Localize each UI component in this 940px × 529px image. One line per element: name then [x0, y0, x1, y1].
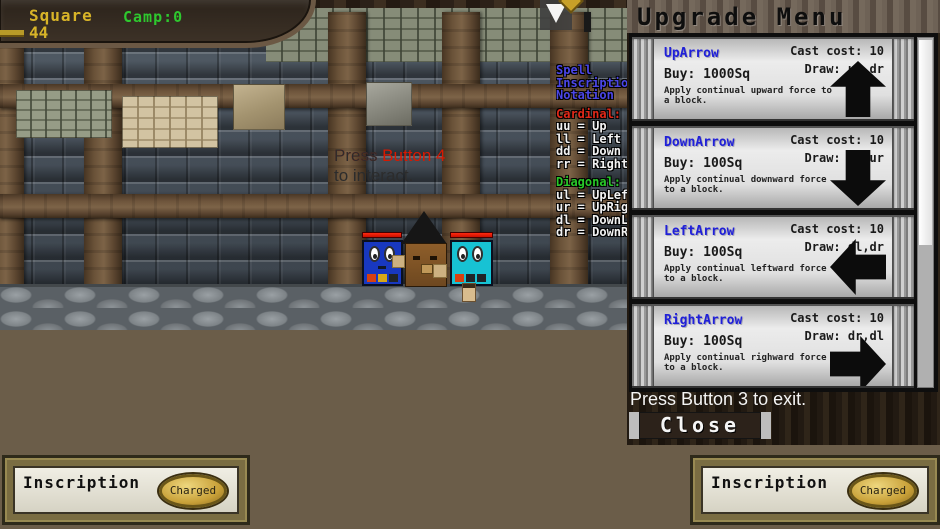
- close-button-label: Close: [660, 413, 740, 437]
- down-triangle-icon: [546, 4, 566, 23]
- notation-entry: uu = Up: [556, 120, 627, 133]
- square-value: 44: [29, 23, 48, 42]
- card-rail: [892, 39, 914, 121]
- mouth: [378, 266, 386, 269]
- upgrade-name: LeftArrow: [664, 224, 734, 239]
- brick-patch: [16, 90, 112, 138]
- inscription-panel-left: Inscription Charged: [2, 455, 250, 525]
- upgrade-description: Apply continual downward force to a bloc…: [664, 176, 832, 195]
- pupil: [373, 254, 377, 259]
- diagonal-header: Diagonal:: [556, 176, 627, 189]
- game-scene: Square 44 Camp:0 Spell Inscription Notat…: [0, 0, 628, 529]
- inscription-inner: Inscription Charged: [701, 466, 929, 514]
- game-screen: Square 44 Camp:0 Spell Inscription Notat…: [0, 0, 940, 529]
- wood-beam: [84, 12, 122, 290]
- status-icon: [367, 274, 376, 282]
- interact-suffix: to interact.: [334, 166, 446, 186]
- eye-icon: [413, 256, 420, 260]
- cast-cost: Cast cost: 10: [790, 222, 884, 236]
- tan-block: [392, 255, 405, 268]
- cast-cost: Cast cost: 10: [790, 311, 884, 325]
- spell-title-line: Notation: [556, 89, 627, 102]
- hair: [463, 284, 475, 288]
- eye-icon: [472, 246, 483, 262]
- notation-entry: rr = Right: [556, 158, 627, 171]
- location-banner: Square 44 Camp:0: [0, 0, 316, 48]
- upgrade-name: RightArrow: [664, 313, 742, 328]
- upgrade-name: DownArrow: [664, 135, 734, 150]
- upgrade-card-downarrow[interactable]: DownArrow Cast cost: 10 Draw: dr,ur Buy:…: [632, 126, 914, 210]
- stone-patch: [366, 82, 412, 126]
- brick-patch: [122, 96, 218, 148]
- inscription-label: Inscription: [711, 473, 828, 492]
- cast-cost: Cast cost: 10: [790, 133, 884, 147]
- upgrade-card-list: UpArrow Cast cost: 10 Draw: ur,dr Buy: 1…: [632, 37, 914, 388]
- tan-block: [433, 264, 447, 278]
- upgrade-card-rightarrow[interactable]: RightArrow Cast cost: 10 Draw: dr,dl Buy…: [632, 304, 914, 388]
- scrollbar-thumb[interactable]: [919, 40, 932, 245]
- upgrade-card-leftarrow[interactable]: LeftArrow Cast cost: 10 Draw: dl,dr Buy:…: [632, 215, 914, 299]
- health-bar-right: [450, 232, 493, 238]
- notation-entry: dr = DownRight: [556, 226, 627, 239]
- buy-price: Buy: 1000Sq: [664, 67, 750, 82]
- buy-price: Buy: 100Sq: [664, 245, 742, 260]
- pupil: [476, 254, 480, 259]
- interact-prefix: Press: [334, 146, 377, 166]
- wood-beam: [0, 12, 24, 290]
- upgrade-description: Apply continual leftward force to a bloc…: [664, 265, 832, 284]
- inscription-panel-right: Inscription Charged: [690, 455, 940, 525]
- banner-gold-trim: [0, 30, 24, 37]
- card-rail: [632, 128, 654, 210]
- eye-icon: [430, 256, 437, 260]
- status-icon: [455, 274, 464, 282]
- snout: [421, 264, 433, 274]
- inscription-label: Inscription: [23, 473, 140, 492]
- charged-button-label: Charged: [860, 484, 906, 497]
- eye-icon: [369, 246, 380, 262]
- exit-hint: Press Button 3 to exit.: [630, 389, 806, 410]
- card-rail: [632, 306, 654, 388]
- small-character: [462, 283, 476, 302]
- menu-scrollbar[interactable]: [917, 37, 934, 388]
- stone-patch: [233, 84, 285, 130]
- upgrade-menu-body: UpArrow Cast cost: 10 Draw: ur,dr Buy: 1…: [629, 33, 938, 392]
- upgrade-menu-title: Upgrade Menu: [637, 3, 846, 31]
- status-icon: [477, 274, 486, 282]
- eye-icon: [457, 246, 468, 262]
- draw-sequence: Draw: dr,dl: [805, 329, 884, 343]
- card-rail: [892, 128, 914, 210]
- block-character-cyan: [450, 240, 493, 286]
- wizard-hat: [401, 211, 447, 244]
- cobblestone-floor: [0, 284, 628, 332]
- right-arrow-icon: [830, 336, 886, 388]
- upgrade-name: UpArrow: [664, 46, 719, 61]
- wood-beam: [0, 194, 628, 218]
- inscription-inner: Inscription Charged: [13, 466, 239, 514]
- status-icon: [378, 274, 387, 282]
- card-rail: [892, 306, 914, 388]
- close-button[interactable]: Close: [629, 412, 771, 439]
- status-icon: [466, 274, 475, 282]
- spell-notation-help: Spell Inscription Notation Cardinal: uu …: [556, 64, 627, 264]
- dark-post: [584, 12, 591, 32]
- interact-prompt: Press Press Button 4 to interact.: [334, 146, 446, 186]
- spell-title-line: Spell: [556, 64, 627, 77]
- card-rail: [632, 39, 654, 121]
- card-rail: [632, 217, 654, 299]
- upgrade-description: Apply continual upward force to a block.: [664, 87, 832, 106]
- notation-entry: ur = UpRight: [556, 201, 627, 214]
- camp-counter: Camp:0: [123, 8, 183, 26]
- cast-cost: Cast cost: 10: [790, 44, 884, 58]
- draw-sequence: Draw: dr,ur: [805, 151, 884, 165]
- charged-button-label: Charged: [170, 484, 216, 497]
- upgrade-description: Apply continual righward force to a bloc…: [664, 354, 832, 373]
- health-bar-left: [362, 232, 402, 238]
- buy-price: Buy: 100Sq: [664, 334, 742, 349]
- buy-price: Buy: 100Sq: [664, 156, 742, 171]
- pupil: [461, 254, 465, 259]
- card-rail: [892, 217, 914, 299]
- notation-entry: dd = Down: [556, 145, 627, 158]
- charged-button[interactable]: Charged: [849, 474, 917, 508]
- status-icon: [389, 274, 398, 282]
- charged-button[interactable]: Charged: [159, 474, 227, 508]
- upgrade-card-uparrow[interactable]: UpArrow Cast cost: 10 Draw: ur,dr Buy: 1…: [632, 37, 914, 121]
